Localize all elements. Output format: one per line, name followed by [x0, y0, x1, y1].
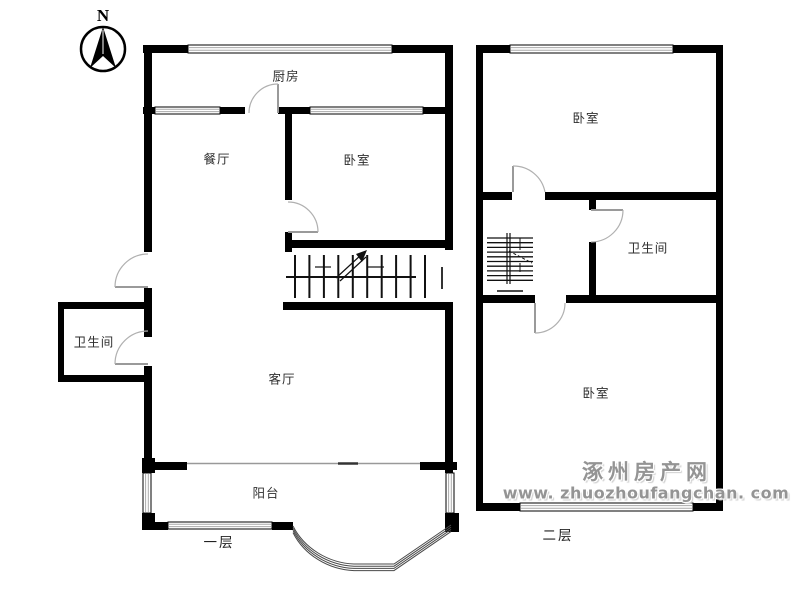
wall-segment [476, 295, 535, 303]
label-living-room: 客厅 [268, 369, 295, 388]
floorplan-page: N 厨房 餐厅 卧室 卫生间 客厅 阳台 一层 卧室 卫生间 卧室 二层 涿州房… [0, 0, 800, 600]
wall-segment [445, 302, 453, 473]
wall-segment [285, 110, 292, 200]
window [188, 45, 392, 53]
wall-segment [142, 522, 168, 530]
windows-first-floor [143, 45, 454, 529]
wall-segment [392, 45, 452, 53]
watermark-site-name: 涿州房产网 [582, 456, 712, 486]
side-entry-door [115, 254, 148, 287]
wall-segment [144, 45, 152, 252]
wall-segment [420, 462, 457, 470]
window [143, 473, 151, 513]
wall-segment [476, 503, 520, 511]
wall-segment [693, 503, 723, 511]
windows-second-floor [510, 45, 693, 511]
north-label: N [97, 6, 109, 26]
wall-segment [673, 45, 723, 53]
wall-segment [144, 288, 152, 337]
wall-segment [566, 295, 723, 303]
staircase-second-floor [487, 233, 533, 291]
label-bathroom-second-floor: 卫生间 [628, 238, 669, 257]
wall-segment [272, 522, 293, 530]
north-compass-icon [81, 27, 125, 71]
label-kitchen: 厨房 [272, 66, 299, 85]
wall-segment [589, 242, 596, 302]
label-bathroom-first-floor: 卫生间 [74, 332, 115, 351]
window [510, 45, 673, 53]
label-balcony: 阳台 [252, 483, 279, 502]
wall-segment [142, 458, 155, 473]
wall-segment [716, 45, 723, 511]
wall-segment [445, 513, 459, 532]
bedroom-bottom-door [535, 303, 565, 333]
bay-window-curve [293, 525, 451, 571]
bedroom-top-door [513, 166, 545, 192]
wall-segment [285, 240, 452, 248]
wall-segment [278, 107, 310, 114]
wall-segment [58, 302, 64, 382]
window [155, 107, 220, 114]
wall-segment [589, 200, 596, 210]
watermark-site-url: www. zhuozhoufangchan. com [503, 484, 790, 503]
wall-segment [58, 375, 150, 382]
wall-segment [143, 107, 155, 114]
bedroom-door [288, 202, 318, 232]
staircase-first-floor [286, 250, 425, 298]
wall-segment [476, 45, 483, 511]
wall-segment [58, 302, 150, 309]
doors-second-floor [513, 166, 623, 333]
label-bedroom-top-second-floor: 卧室 [572, 108, 599, 127]
wall-segment [220, 107, 245, 114]
window [520, 503, 693, 511]
label-bedroom-bottom-second-floor: 卧室 [582, 383, 609, 402]
label-dining-room: 餐厅 [203, 149, 230, 168]
walls-first-floor [58, 45, 459, 532]
window [310, 107, 423, 114]
wall-segment [283, 302, 452, 310]
kitchen-door [249, 84, 278, 113]
label-floor-one: 一层 [204, 531, 235, 551]
label-floor-two: 二层 [543, 524, 574, 544]
wall-segment [545, 192, 723, 200]
bathroom-door [115, 331, 148, 364]
floorplan-drawing [0, 0, 800, 600]
bathroom-door [591, 210, 623, 242]
label-bedroom-first-floor: 卧室 [343, 150, 370, 169]
wall-segment [476, 192, 512, 200]
window [168, 522, 272, 529]
wall-segment [445, 45, 453, 250]
window [446, 473, 454, 513]
